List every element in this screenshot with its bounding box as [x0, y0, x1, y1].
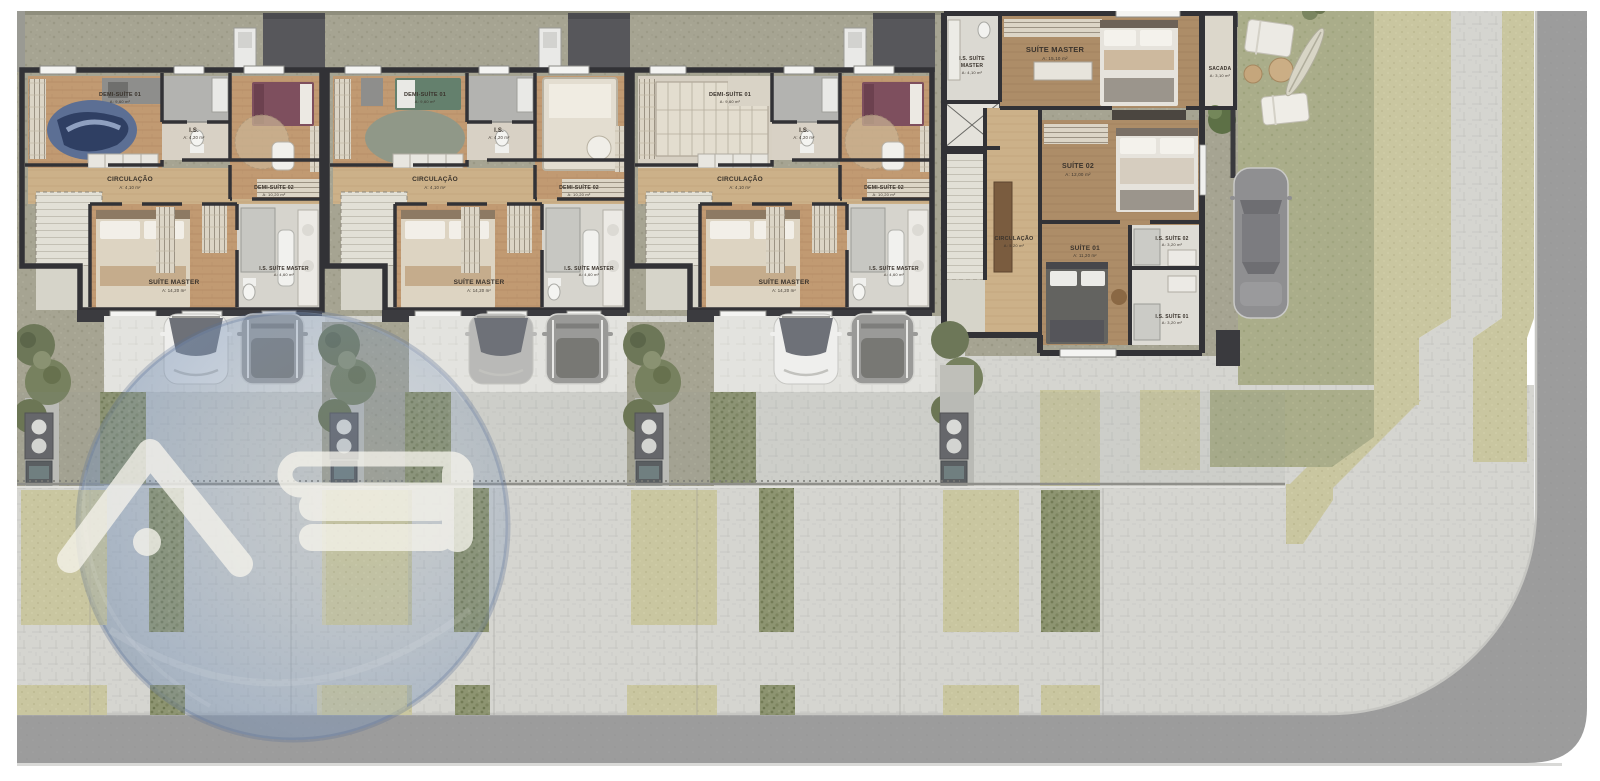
svg-text:A: 4,20 m²: A: 4,20 m² [488, 135, 510, 140]
svg-text:I.S.: I.S. [189, 128, 199, 134]
svg-text:A: 14,20 m²: A: 14,20 m² [467, 288, 491, 293]
svg-text:I.S.: I.S. [799, 128, 809, 134]
svg-text:A: 15,10 m²: A: 15,10 m² [1042, 56, 1068, 61]
svg-text:A: 9,60 m²: A: 9,60 m² [720, 99, 741, 104]
svg-text:A: 14,20 m²: A: 14,20 m² [162, 288, 186, 293]
svg-text:SUÍTE MASTER: SUÍTE MASTER [759, 277, 810, 286]
svg-text:I.S. SUÍTE MASTER: I.S. SUÍTE MASTER [259, 264, 309, 272]
svg-text:A: 3,20 m²: A: 3,20 m² [1162, 242, 1183, 247]
svg-text:A: 4,10 m²: A: 4,10 m² [962, 70, 983, 75]
svg-text:I.S. SUÍTE MASTER: I.S. SUÍTE MASTER [564, 264, 614, 272]
svg-text:DEMI-SUÍTE 01: DEMI-SUÍTE 01 [709, 90, 751, 98]
svg-text:SUÍTE 01: SUÍTE 01 [1070, 243, 1100, 252]
svg-text:I.S. SUÍTE 02: I.S. SUÍTE 02 [1155, 234, 1188, 242]
svg-text:A: 11,20 m²: A: 11,20 m² [1073, 253, 1097, 258]
svg-text:CIRCULAÇÃO: CIRCULAÇÃO [995, 235, 1034, 242]
svg-text:A: 12,00 m²: A: 12,00 m² [1065, 172, 1091, 177]
svg-text:I.S. SUÍTE MASTER: I.S. SUÍTE MASTER [869, 264, 919, 272]
svg-text:A: 3,10 m²: A: 3,10 m² [1210, 73, 1231, 78]
svg-text:SACADA: SACADA [1209, 66, 1232, 72]
svg-text:A: 4,60 m²: A: 4,60 m² [274, 272, 295, 277]
svg-text:CIRCULAÇÃO: CIRCULAÇÃO [107, 174, 153, 183]
svg-text:A: 4,10 m²: A: 4,10 m² [729, 185, 751, 190]
svg-text:MASTER: MASTER [961, 63, 984, 69]
svg-text:A: 10,20 m²: A: 10,20 m² [263, 192, 286, 197]
svg-text:A: 4,60 m²: A: 4,60 m² [884, 272, 905, 277]
svg-text:DEMI-SUÍTE 02: DEMI-SUÍTE 02 [559, 183, 599, 191]
svg-text:A: 10,20 m²: A: 10,20 m² [568, 192, 591, 197]
svg-text:CIRCULAÇÃO: CIRCULAÇÃO [412, 174, 458, 183]
svg-text:DEMI-SUÍTE 01: DEMI-SUÍTE 01 [404, 90, 446, 98]
svg-text:I.S. SUÍTE 01: I.S. SUÍTE 01 [1155, 312, 1188, 320]
svg-text:A: 3,20 m²: A: 3,20 m² [1162, 320, 1183, 325]
svg-text:A: 4,20 m²: A: 4,20 m² [183, 135, 205, 140]
svg-text:A: 4,10 m²: A: 4,10 m² [119, 185, 141, 190]
svg-text:A: 4,60 m²: A: 4,60 m² [579, 272, 600, 277]
svg-text:CIRCULAÇÃO: CIRCULAÇÃO [717, 174, 763, 183]
svg-text:A: 4,20 m²: A: 4,20 m² [793, 135, 815, 140]
svg-text:A: 14,20 m²: A: 14,20 m² [772, 288, 796, 293]
svg-text:SUÍTE MASTER: SUÍTE MASTER [1026, 45, 1085, 54]
svg-text:A: 4,10 m²: A: 4,10 m² [424, 185, 446, 190]
svg-text:SUÍTE 02: SUÍTE 02 [1062, 161, 1094, 170]
svg-text:A: 5,20 m²: A: 5,20 m² [1004, 243, 1025, 248]
svg-text:SUÍTE MASTER: SUÍTE MASTER [454, 277, 505, 286]
svg-text:A: 9,60 m²: A: 9,60 m² [415, 99, 436, 104]
svg-text:DEMI-SUÍTE 02: DEMI-SUÍTE 02 [864, 183, 904, 191]
svg-text:I.S.: I.S. [494, 128, 504, 134]
svg-text:SUÍTE MASTER: SUÍTE MASTER [149, 277, 200, 286]
svg-text:A: 10,20 m²: A: 10,20 m² [873, 192, 896, 197]
svg-text:DEMI-SUÍTE 02: DEMI-SUÍTE 02 [254, 183, 294, 191]
svg-text:I.S. SUÍTE: I.S. SUÍTE [959, 54, 985, 62]
svg-text:A: 9,60 m²: A: 9,60 m² [110, 99, 131, 104]
svg-text:DEMI-SUÍTE 01: DEMI-SUÍTE 01 [99, 90, 141, 98]
